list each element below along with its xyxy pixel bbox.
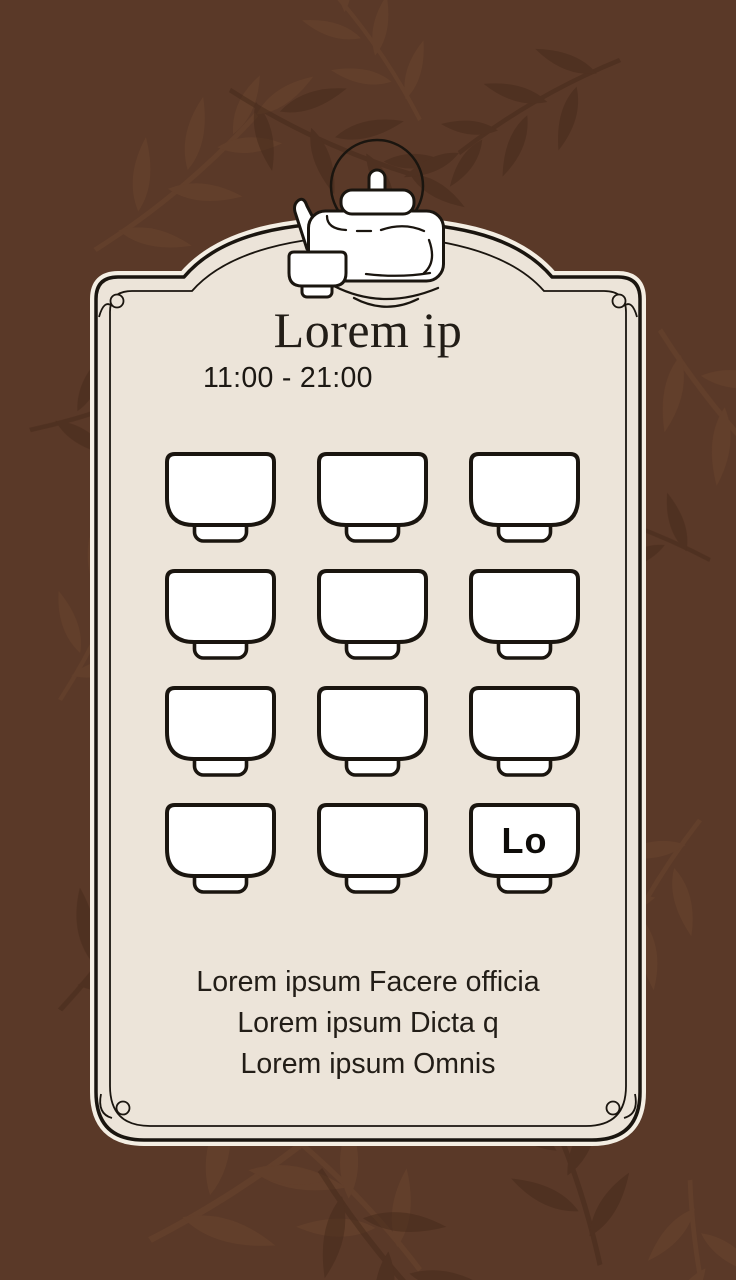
footer-line-3: Lorem ipsum Omnis <box>96 1044 640 1085</box>
stamp-cup <box>314 683 431 779</box>
teacup-icon <box>466 449 583 545</box>
footer-text: Lorem ipsum Facere officia Lorem ipsum D… <box>96 962 640 1085</box>
stamp-cup <box>314 800 431 896</box>
loyalty-card-page: { "colors": { "background": "#5A3928", "… <box>0 0 736 1280</box>
teacup-icon <box>162 449 279 545</box>
teacup-icon <box>314 566 431 662</box>
teacup-icon <box>466 566 583 662</box>
card-title: Lorem ip <box>96 305 640 355</box>
stamp-cup <box>466 449 583 545</box>
teacup-icon <box>314 449 431 545</box>
teacup-icon <box>314 800 431 896</box>
stamp-cup <box>162 449 279 545</box>
stamp-cup-label: Lo <box>466 820 583 862</box>
corner-dot-bottom-left <box>117 1102 130 1115</box>
teacup-icon <box>466 683 583 779</box>
footer-line-1: Lorem ipsum Facere officia <box>96 962 640 1003</box>
stamp-cup-labeled: Lo <box>466 800 583 896</box>
stamp-cup <box>314 566 431 662</box>
stamp-cup <box>162 800 279 896</box>
stamp-cup <box>162 683 279 779</box>
opening-hours: 11:00 - 21:00 <box>203 363 373 394</box>
teacup-icon <box>162 683 279 779</box>
stamp-grid: Lo <box>162 449 583 896</box>
stamp-cup <box>314 449 431 545</box>
footer-line-2: Lorem ipsum Dicta q <box>96 1003 640 1044</box>
stamp-cup <box>162 566 279 662</box>
teacup-icon <box>314 683 431 779</box>
teacup-icon <box>162 566 279 662</box>
stamp-cup <box>466 566 583 662</box>
teacup-icon <box>162 800 279 896</box>
corner-dot-bottom-right <box>607 1102 620 1115</box>
stamp-cup <box>466 683 583 779</box>
